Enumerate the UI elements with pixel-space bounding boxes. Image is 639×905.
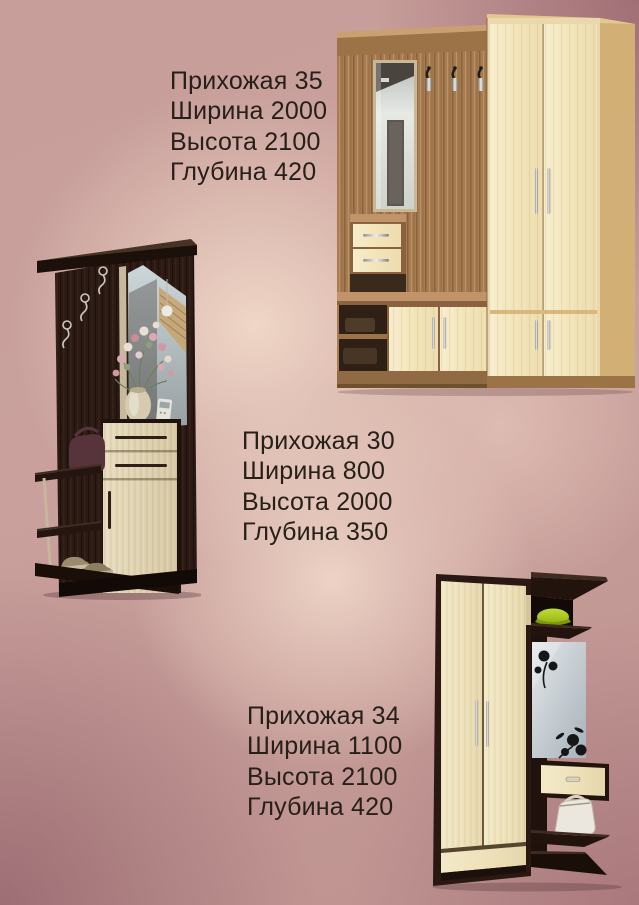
spec-width: Ширина 800: [242, 456, 395, 486]
product-title: Прихожая 35: [170, 66, 327, 96]
shoe-cabinet: [387, 305, 490, 373]
product-photo-prihozhaya-35: [335, 8, 637, 396]
mirror-with-floral-decal: [532, 642, 587, 758]
spec-width: Ширина 1100: [247, 731, 402, 761]
drawer: [537, 760, 609, 801]
spec-height: Высота 2000: [242, 487, 395, 517]
spec-height: Высота 2100: [247, 762, 402, 792]
spec-depth: Глубина 350: [242, 517, 395, 547]
product-title: Прихожая 34: [247, 701, 402, 731]
wardrobe: [486, 14, 635, 388]
product-info-prihozhaya-34: Прихожая 34 Ширина 1100 Высота 2100 Глуб…: [247, 701, 402, 823]
floor-shadow: [432, 883, 622, 892]
product-photo-prihozhaya-30: [31, 233, 201, 603]
cornice: [531, 572, 608, 600]
floor-shadow: [337, 388, 633, 396]
spec-width: Ширина 2000: [170, 96, 327, 126]
spec-depth: Глубина 420: [170, 157, 327, 187]
catalog-page: Прихожая 35 Ширина 2000 Высота 2100 Глуб…: [0, 0, 639, 905]
telephone: [156, 398, 172, 421]
shelf-column: [526, 572, 610, 875]
drawer-unit: [350, 214, 406, 292]
spec-height: Высота 2100: [170, 127, 327, 157]
spec-depth: Глубина 420: [247, 792, 402, 822]
cabinet: [101, 419, 181, 593]
product-info-prihozhaya-35: Прихожая 35 Ширина 2000 Высота 2100 Глуб…: [170, 66, 327, 188]
product-title: Прихожая 30: [242, 426, 395, 456]
wardrobe: [433, 574, 531, 886]
bench-top: [337, 292, 490, 301]
mirror: [373, 60, 417, 212]
open-shelves: [339, 305, 387, 371]
product-photo-prihozhaya-34: [427, 560, 639, 892]
white-handbag: [555, 796, 595, 837]
product-info-prihozhaya-30: Прихожая 30 Ширина 800 Высота 2000 Глуби…: [242, 426, 395, 548]
